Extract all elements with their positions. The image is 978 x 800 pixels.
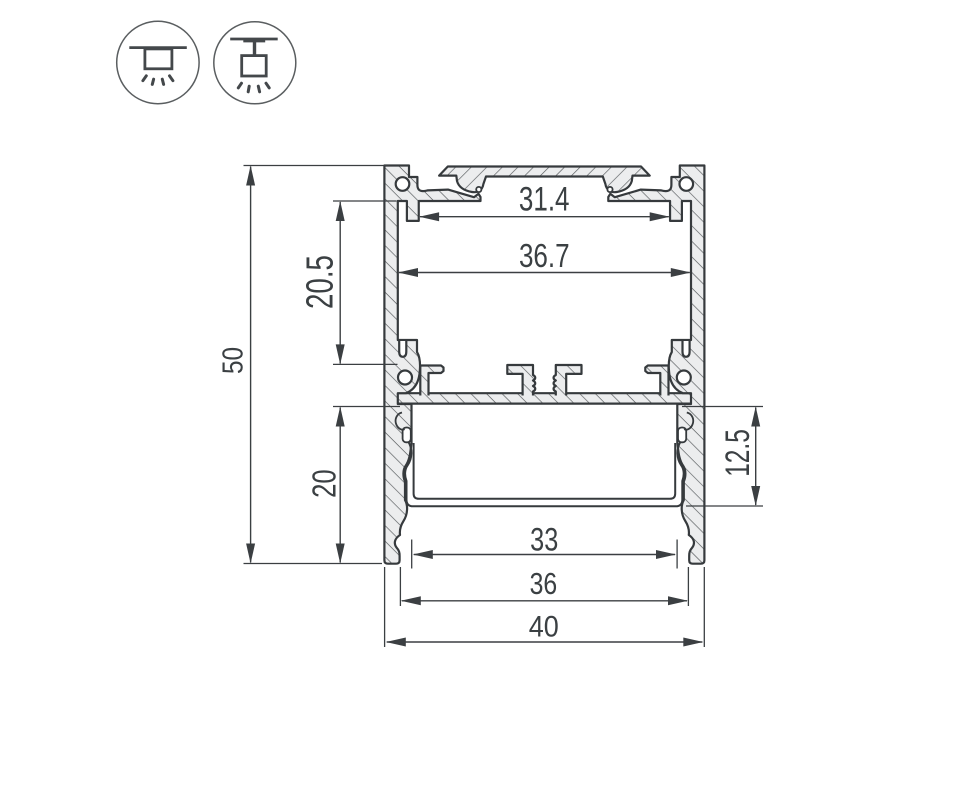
svg-text:12.5: 12.5 [719, 429, 757, 477]
svg-text:36.7: 36.7 [519, 238, 570, 275]
svg-text:36: 36 [530, 566, 558, 600]
svg-text:20.5: 20.5 [299, 255, 341, 309]
svg-text:40: 40 [529, 610, 559, 644]
svg-text:50: 50 [217, 347, 249, 374]
svg-text:31.4: 31.4 [519, 181, 570, 218]
svg-text:33: 33 [530, 523, 558, 559]
svg-text:20: 20 [307, 469, 344, 498]
